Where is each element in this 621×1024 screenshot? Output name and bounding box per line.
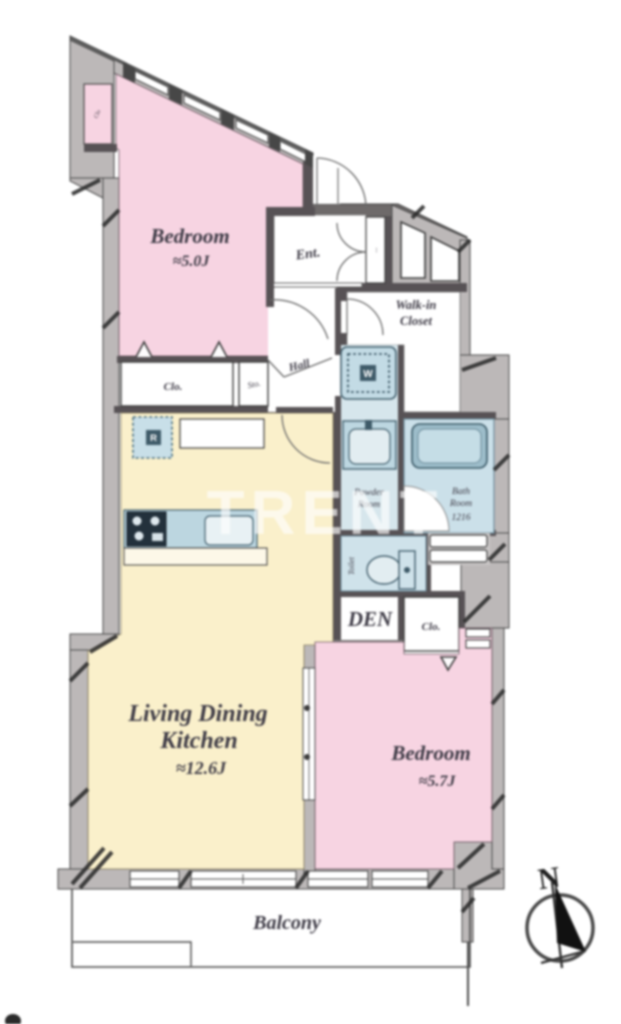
svg-text:Living Dining: Living Dining: [127, 701, 267, 727]
svg-text:Bedroom: Bedroom: [149, 224, 229, 248]
svg-text:Closet: Closet: [400, 314, 432, 328]
svg-text:Balcony: Balcony: [252, 912, 321, 934]
svg-text:DEN: DEN: [347, 607, 393, 631]
svg-text:≈12.6J: ≈12.6J: [176, 758, 227, 778]
svg-text:Walk-in: Walk-in: [396, 298, 437, 312]
svg-text:Kitchen: Kitchen: [159, 728, 237, 754]
svg-text:Toilet: Toilet: [347, 556, 356, 575]
svg-text:···: ···: [372, 247, 380, 253]
svg-text:≈5.0J: ≈5.0J: [173, 253, 211, 270]
svg-text:Clo.: Clo.: [422, 621, 441, 633]
svg-text:1216: 1216: [452, 513, 471, 523]
svg-text:TRENT: TRENT: [207, 479, 444, 548]
svg-text:Bath: Bath: [452, 487, 470, 497]
svg-text:W: W: [363, 369, 373, 380]
svg-text:Bedroom: Bedroom: [390, 741, 470, 765]
svg-text:≈5.7J: ≈5.7J: [419, 773, 457, 790]
svg-text:Clo.: Clo.: [164, 381, 183, 393]
svg-text:Room: Room: [449, 499, 472, 509]
svg-text:R: R: [150, 433, 157, 444]
